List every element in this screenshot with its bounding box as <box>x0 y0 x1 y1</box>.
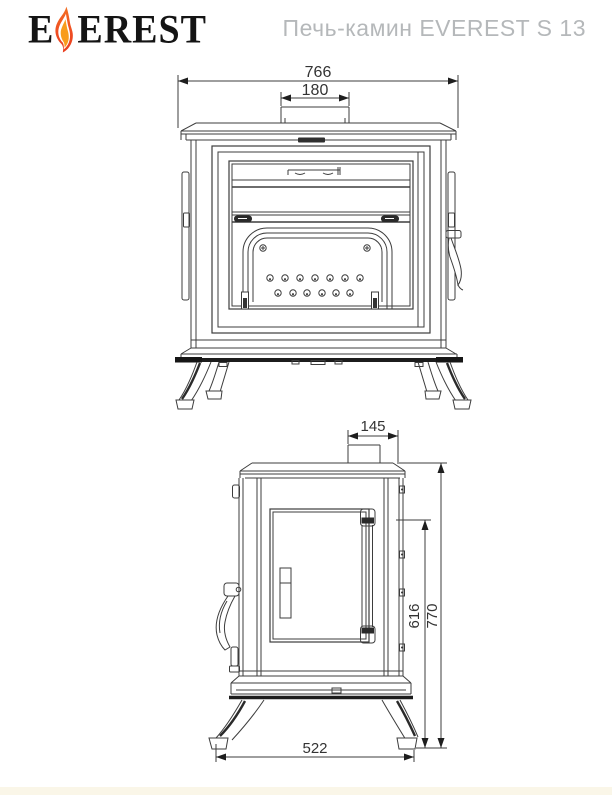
air-deflector <box>288 167 340 175</box>
dim-766-label: 766 <box>305 64 332 81</box>
page: E EREST Печь-камин EVEREST S 13 <box>0 0 612 795</box>
base-side <box>229 676 413 698</box>
flue-collar-side <box>348 445 380 463</box>
dim-180-label: 180 <box>302 82 329 99</box>
back-screw-tabs <box>400 486 405 651</box>
front-view: 766 180 <box>175 64 471 409</box>
door-handle-side <box>216 583 241 650</box>
side-handle-bar <box>280 568 291 618</box>
grate-holes <box>267 275 363 296</box>
dim-616-label: 616 <box>406 603 423 628</box>
stove-body-side <box>230 478 405 676</box>
log-retainer <box>242 228 393 309</box>
right-hinge-bump <box>449 213 455 227</box>
side-panel <box>270 509 369 642</box>
side-view: 145 522 616 770 <box>209 418 447 762</box>
footer-strip <box>0 787 612 795</box>
front-top-tab <box>233 485 240 498</box>
front-bottom-tab <box>231 647 238 666</box>
dim-145-label: 145 <box>360 418 385 435</box>
dim-770-label: 770 <box>424 603 441 628</box>
legs-front <box>176 362 471 409</box>
technical-drawing: 766 180 <box>0 0 612 795</box>
stove-body-front <box>182 138 455 349</box>
top-plate-side <box>240 463 405 478</box>
flue-collar-front <box>281 107 349 123</box>
top-vent-grille <box>298 138 325 143</box>
top-plate-front <box>181 123 456 140</box>
dim-522-label: 522 <box>302 740 327 757</box>
